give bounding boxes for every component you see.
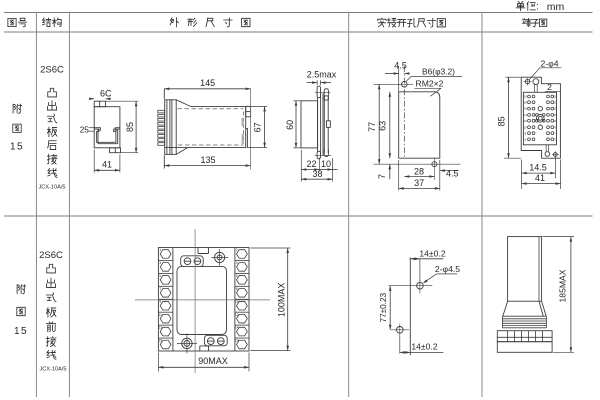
- svg-text:185MAX: 185MAX: [558, 269, 568, 302]
- svg-text:25: 25: [80, 126, 90, 135]
- svg-text:67: 67: [252, 122, 262, 132]
- svg-text:20: 20: [524, 95, 527, 99]
- svg-text:5: 5: [554, 137, 556, 141]
- svg-text:2-φ4.5: 2-φ4.5: [435, 264, 460, 274]
- svg-text:B6(φ3.2): B6(φ3.2): [422, 66, 455, 76]
- svg-text:90MAX: 90MAX: [198, 356, 228, 366]
- svg-text::: :: [536, 2, 539, 13]
- svg-text:4.5: 4.5: [394, 61, 407, 71]
- svg-text:63: 63: [378, 121, 388, 131]
- svg-text:38: 38: [312, 169, 322, 179]
- svg-text:RM2×2: RM2×2: [416, 79, 444, 89]
- svg-text:14.5: 14.5: [529, 163, 547, 173]
- svg-text:13: 13: [159, 326, 163, 330]
- svg-text:14±0.2: 14±0.2: [411, 342, 437, 352]
- svg-text:15: 15: [554, 107, 557, 111]
- svg-text:12: 12: [235, 313, 239, 317]
- svg-text:7: 7: [554, 131, 556, 135]
- svg-text:22: 22: [306, 159, 316, 169]
- svg-text:2.5max: 2.5max: [307, 70, 337, 80]
- svg-text:41: 41: [102, 159, 112, 169]
- svg-text:100MAX: 100MAX: [276, 283, 286, 318]
- svg-text:10: 10: [524, 125, 527, 129]
- svg-text:15: 15: [159, 339, 163, 343]
- svg-text:2-φ4: 2-φ4: [541, 58, 559, 68]
- svg-text:41: 41: [535, 173, 545, 183]
- svg-text:9: 9: [554, 125, 556, 129]
- svg-text:15: 15: [14, 326, 28, 337]
- svg-text:7: 7: [159, 287, 161, 291]
- svg-text:11: 11: [554, 119, 557, 123]
- svg-text:14±0.2: 14±0.2: [419, 248, 445, 258]
- svg-text:19: 19: [554, 95, 557, 99]
- svg-text:77±0.23: 77±0.23: [379, 292, 388, 322]
- svg-text:5: 5: [159, 274, 161, 278]
- svg-text:18: 18: [524, 100, 527, 104]
- svg-text:37: 37: [414, 178, 424, 188]
- svg-text:13: 13: [554, 113, 557, 117]
- svg-text:60: 60: [285, 120, 295, 130]
- svg-text:85: 85: [125, 122, 135, 132]
- svg-text:9: 9: [159, 300, 161, 304]
- svg-text:15: 15: [10, 142, 24, 153]
- svg-text:11: 11: [159, 313, 163, 317]
- svg-text:12: 12: [524, 119, 527, 123]
- svg-text:14: 14: [524, 113, 527, 117]
- svg-text:4.5: 4.5: [446, 168, 459, 178]
- svg-text:1: 1: [159, 248, 161, 252]
- svg-text:6: 6: [236, 274, 238, 278]
- svg-text:28: 28: [414, 167, 424, 177]
- svg-text:3: 3: [159, 261, 161, 265]
- svg-text:2S6C: 2S6C: [39, 250, 63, 261]
- svg-text:16: 16: [235, 339, 239, 343]
- svg-text:85: 85: [497, 116, 507, 126]
- svg-text:77: 77: [367, 122, 377, 132]
- svg-text:6C: 6C: [100, 89, 112, 99]
- svg-text:JCX-10A/5: JCX-10A/5: [38, 184, 65, 190]
- svg-text:14: 14: [235, 326, 239, 330]
- svg-text:2: 2: [547, 82, 552, 92]
- svg-text:8: 8: [236, 287, 238, 291]
- svg-text:10: 10: [321, 159, 331, 169]
- svg-text:6: 6: [525, 137, 527, 141]
- svg-text:135: 135: [200, 155, 215, 165]
- svg-text:145: 145: [200, 78, 215, 88]
- svg-text:16: 16: [524, 107, 527, 111]
- svg-text:10: 10: [235, 300, 239, 304]
- svg-text:8: 8: [525, 131, 527, 135]
- svg-text:JCX-10A/5: JCX-10A/5: [39, 367, 66, 373]
- svg-text:2S6C: 2S6C: [40, 64, 64, 75]
- svg-text:2: 2: [236, 248, 238, 252]
- svg-text:mm: mm: [547, 1, 565, 13]
- svg-text:4: 4: [236, 261, 238, 265]
- svg-text:17: 17: [554, 100, 557, 104]
- svg-text:7: 7: [377, 174, 387, 179]
